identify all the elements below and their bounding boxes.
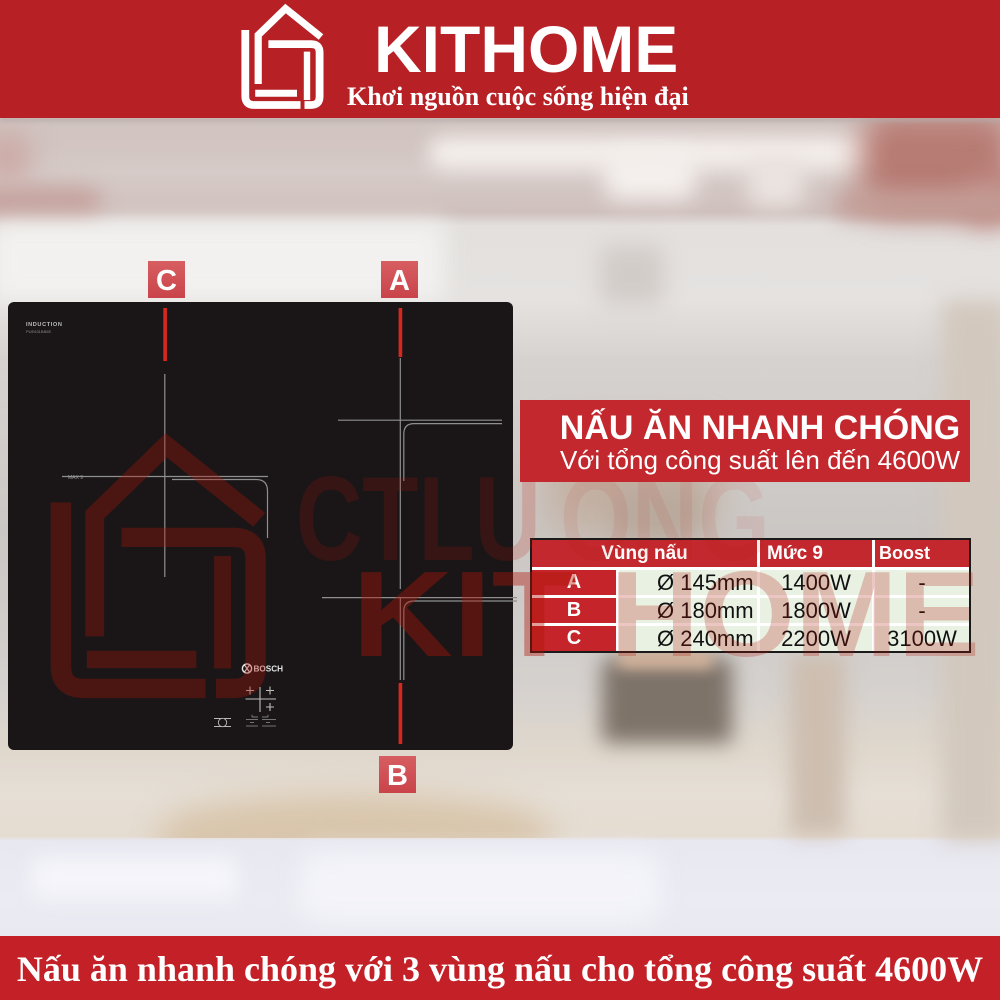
- svg-text:KIT: KIT: [352, 546, 577, 682]
- svg-text:HOME: HOME: [610, 546, 980, 682]
